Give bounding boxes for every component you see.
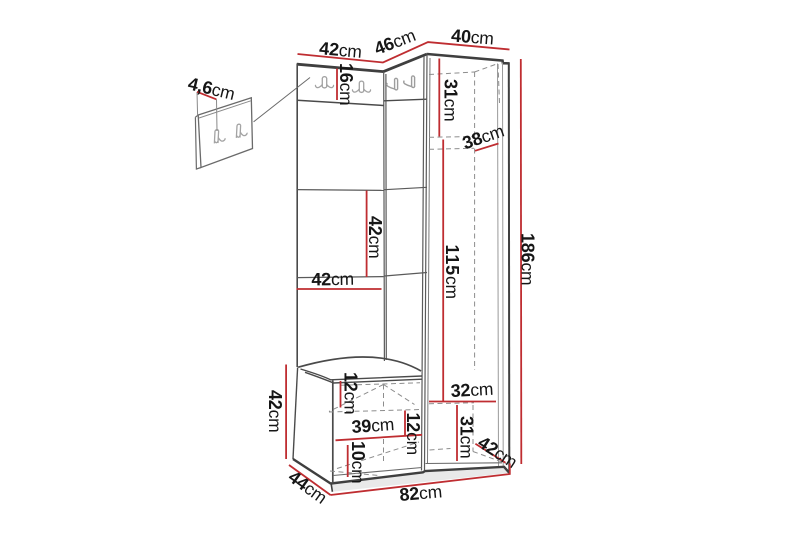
- svg-text:42cm: 42cm: [365, 216, 385, 259]
- svg-text:12cm: 12cm: [403, 413, 423, 456]
- svg-text:31cm: 31cm: [441, 79, 461, 122]
- svg-text:39cm: 39cm: [351, 414, 395, 437]
- svg-text:42cm: 42cm: [318, 38, 362, 62]
- svg-text:31cm: 31cm: [457, 416, 477, 459]
- svg-text:10cm: 10cm: [348, 441, 368, 484]
- svg-text:46cm: 46cm: [371, 25, 418, 59]
- svg-text:42cm: 42cm: [265, 390, 285, 433]
- svg-text:44cm: 44cm: [285, 467, 331, 508]
- svg-text:42cm: 42cm: [311, 269, 354, 290]
- svg-text:32cm: 32cm: [450, 379, 494, 401]
- svg-text:4,6cm: 4,6cm: [186, 73, 237, 104]
- svg-text:186cm: 186cm: [518, 233, 538, 285]
- svg-text:115cm: 115cm: [442, 245, 462, 299]
- svg-text:16cm: 16cm: [336, 63, 356, 106]
- svg-text:40cm: 40cm: [450, 25, 494, 48]
- svg-text:12cm: 12cm: [341, 372, 361, 415]
- svg-text:82cm: 82cm: [399, 481, 443, 505]
